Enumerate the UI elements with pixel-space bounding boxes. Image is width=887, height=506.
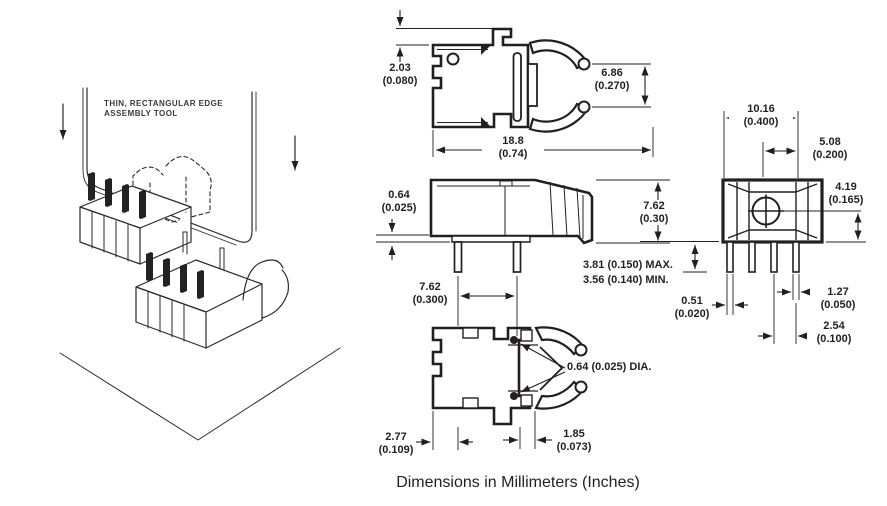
dim-in: (0.025) (364, 202, 434, 215)
dim-in: (0.270) (583, 80, 641, 93)
dim-in: (0.165) (812, 194, 880, 207)
heatsink-datasheet-figure: 2.03 (0.080) 6.86 (0.270) 18.8 (0.74) 0.… (0, 0, 887, 506)
dim-leg-pitch: 2.54 (0.100) (806, 320, 862, 345)
side-elevation-view (431, 180, 592, 272)
leg-left (455, 242, 462, 272)
dim-in: (0.300) (406, 294, 454, 307)
dim-mm: 2.54 (806, 320, 862, 333)
pin-upper (510, 336, 518, 344)
dim-in: (0.100) (806, 333, 862, 346)
dim-max: 3.81 (0.150) MAX. (583, 258, 693, 273)
dim-tab-height: 2.03 (0.080) (368, 62, 432, 87)
dim-mm: 0.64 (364, 189, 434, 202)
arm-notch (540, 347, 562, 390)
ground-plane (60, 348, 340, 440)
dim-center-to-edge: 5.08 (0.200) (802, 136, 858, 161)
dim-in: (0.200) (802, 149, 858, 162)
dim-in: (0.080) (368, 75, 432, 88)
dim-leg-spacing: 7.62 (0.300) (406, 281, 454, 306)
assembly-tool-label-line2: ASSEMBLY TOOL (104, 109, 223, 119)
dim-mm: 10.16 (729, 103, 793, 116)
front-view (723, 180, 822, 272)
dim-in: (0.74) (482, 148, 544, 161)
dim-mm: 6.86 (583, 67, 641, 80)
dim-leg-width: 0.51 (0.020) (661, 295, 723, 320)
dim-overall-length: 18.8 (0.74) (482, 135, 544, 160)
dim-mm: 5.08 (802, 136, 858, 149)
dim-mm: 1.85 (543, 428, 605, 441)
leg-right (514, 242, 521, 272)
dim-pin-diameter: 0.64 (0.025) DIA. (567, 361, 687, 374)
dim-mm: 2.77 (365, 431, 427, 444)
assembly-tool-label: THIN, RECTANGULAR EDGE ASSEMBLY TOOL (104, 99, 223, 118)
assembly-tool-label-line1: THIN, RECTANGULAR EDGE (104, 99, 223, 109)
assembly-illustration (60, 88, 340, 440)
dim-notch-width: 1.85 (0.073) (543, 428, 605, 453)
dim-mm: 18.8 (482, 135, 544, 148)
dim-clip-opening: 6.86 (0.270) (583, 67, 641, 92)
dim-leg-length: 3.81 (0.150) MAX. 3.56 (0.140) MIN. (583, 258, 693, 287)
dim-mm: 1.27 (810, 286, 866, 299)
dim-min: 3.56 (0.140) MIN. (583, 273, 693, 288)
dim-in: (0.073) (543, 441, 605, 454)
dim-mm: 0.51 (661, 295, 723, 308)
clip-arm-tip-lower (579, 102, 590, 113)
dim-edge-offset: 2.77 (0.109) (365, 431, 427, 456)
pin-lower (510, 392, 518, 400)
dim-mm: 7.62 (626, 200, 682, 213)
dim-in: (0.30) (626, 213, 682, 226)
dim-in: (0.050) (810, 299, 866, 312)
clip-part-upper (80, 172, 191, 264)
dim-leg-offset: 1.27 (0.050) (810, 286, 866, 311)
dim-housing-width: 10.16 (0.400) (729, 103, 793, 128)
units-caption: Dimensions in Millimeters (Inches) (372, 474, 664, 492)
dim-in: (0.400) (729, 116, 793, 129)
line-art (0, 0, 887, 506)
dim-in: (0.109) (365, 444, 427, 457)
dim-mm: 7.62 (406, 281, 454, 294)
dim-in: (0.020) (661, 308, 723, 321)
dim-mm: 2.03 (368, 62, 432, 75)
dim-dia: 0.64 (0.025) DIA. (567, 361, 687, 374)
dim-body-height: 7.62 (0.30) (626, 200, 682, 225)
dim-mm: 4.19 (812, 181, 880, 194)
dim-base-thickness: 0.64 (0.025) (364, 189, 434, 214)
side-profile-view (433, 29, 590, 132)
dim-hole-to-base: 4.19 (0.165) (812, 181, 880, 206)
plan-view (433, 327, 587, 424)
